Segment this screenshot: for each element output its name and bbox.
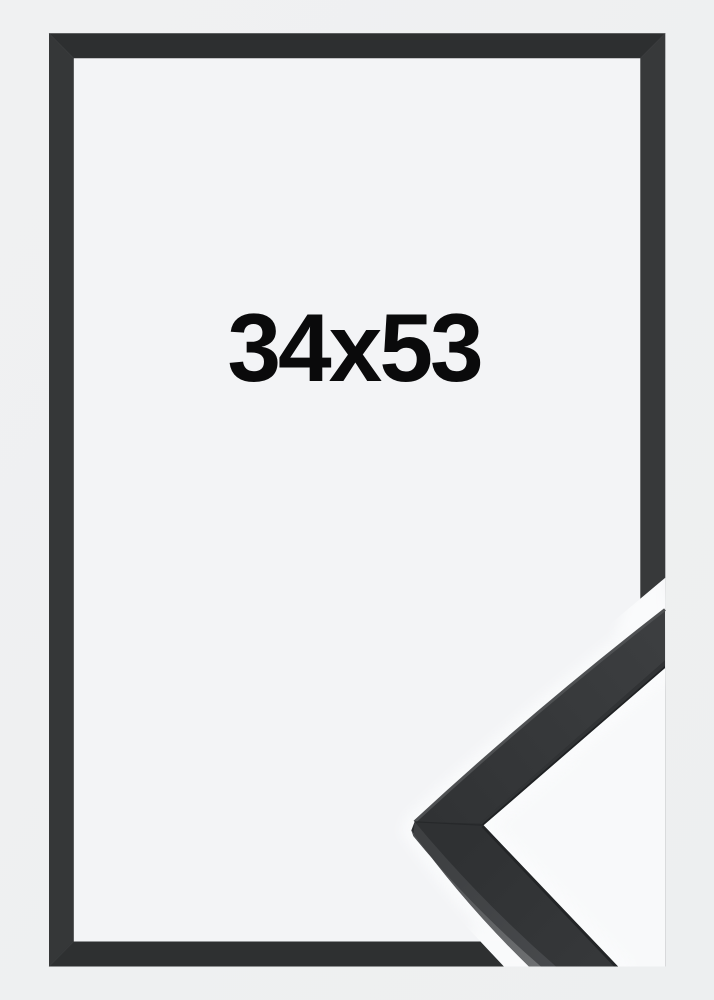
svg-text:34x53: 34x53: [227, 295, 481, 402]
